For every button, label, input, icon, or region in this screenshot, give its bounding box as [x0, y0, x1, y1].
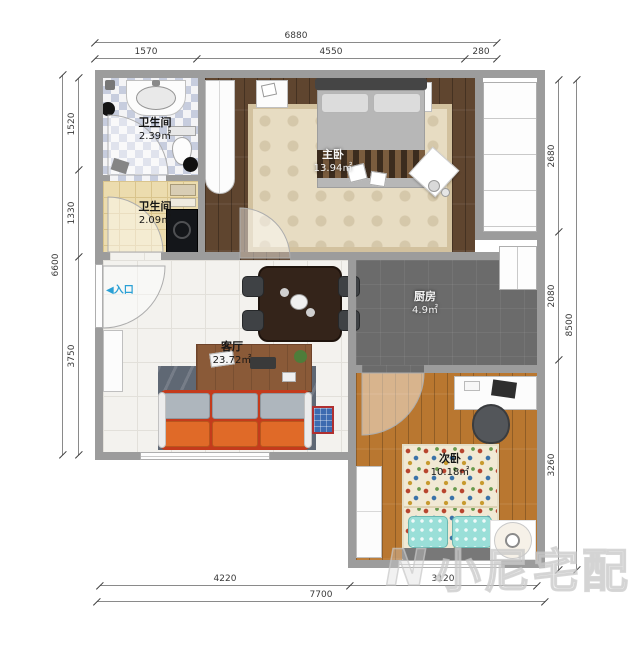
dim-label: 8500	[565, 314, 575, 337]
doormat	[312, 406, 334, 434]
dim-label: 1570	[135, 47, 158, 57]
master-bed-headboard	[315, 78, 427, 90]
shower-head-icon	[105, 80, 115, 90]
dim-label: 4550	[320, 47, 343, 57]
wall-segment	[95, 70, 545, 78]
room-name: 主卧	[322, 148, 344, 161]
dining-chair	[242, 276, 264, 297]
room-name: 次卧	[439, 452, 461, 465]
dim-label: 3260	[547, 454, 557, 477]
door-opening	[110, 252, 161, 260]
dinnerware	[290, 294, 308, 310]
second-bed-pillow	[408, 516, 448, 548]
room-label-living-room: 客厅 23.72㎡	[190, 340, 274, 367]
wall-segment	[537, 78, 545, 568]
dim-left-segments: 1520 1330 3750	[78, 78, 79, 455]
window	[398, 560, 502, 568]
entrance-arrow-icon: ◀	[106, 285, 114, 296]
decor-plate	[428, 180, 440, 192]
room-name: 卫生间	[139, 200, 172, 213]
wall-segment	[166, 175, 198, 181]
dim-label: 6600	[51, 254, 61, 277]
second-bed-fold-line	[404, 506, 497, 508]
second-bed-headboard	[402, 548, 499, 560]
towel-ring-icon	[101, 102, 115, 116]
shoe-cabinet	[103, 330, 123, 392]
entrance-label: 入口	[114, 285, 134, 296]
dim-label: 3750	[67, 345, 77, 368]
room-area: 23.72㎡	[190, 354, 274, 367]
dinnerware	[280, 288, 289, 297]
floor-plan: 卫生间 2.39㎡ 卫生间 2.09㎡ 主卧 13.94㎡ 厨房 4.9㎡ 客厅…	[0, 0, 640, 658]
dim-label: 1330	[67, 202, 77, 225]
desk-paper	[464, 381, 480, 391]
decor-plate	[441, 188, 450, 197]
second-bed-pillow	[452, 516, 492, 548]
kitchen-window-nook	[499, 246, 537, 290]
wall-segment	[198, 70, 205, 260]
wall-segment	[475, 232, 545, 240]
window	[140, 452, 270, 460]
dim-label: 2680	[547, 145, 557, 168]
dim-bottom-segments: 4220 3120	[100, 585, 537, 586]
bedroom2-wardrobe	[356, 466, 382, 558]
sofa-armrest	[304, 392, 312, 448]
dim-top-segments: 1570 4550 280	[95, 58, 497, 59]
master-wardrobe	[205, 80, 235, 194]
wall-segment	[475, 78, 483, 240]
dim-top-overall: 6880	[95, 42, 497, 43]
bathroom-sink	[136, 86, 176, 110]
wall-segment	[161, 252, 240, 260]
room-name: 厨房	[414, 290, 436, 303]
dim-bottom-overall: 7700	[97, 601, 545, 602]
wall-segment	[348, 260, 356, 368]
door-opening	[110, 175, 166, 181]
room-label-second-bedroom: 次卧 10.18㎡	[408, 452, 492, 479]
office-chair	[472, 404, 510, 444]
dim-label: 2080	[547, 285, 557, 308]
door-opening	[362, 365, 424, 373]
laptop	[491, 379, 517, 398]
sofa-seat-cushions	[163, 421, 307, 447]
room-name: 客厅	[221, 340, 243, 353]
wall-segment	[348, 365, 362, 373]
dim-label: 3120	[432, 574, 455, 584]
room-area: 2.39㎡	[113, 130, 197, 143]
wall-segment	[103, 175, 110, 181]
room-label-bathroom-top: 卫生间 2.39㎡	[113, 116, 197, 143]
room-area: 2.09㎡	[113, 214, 197, 227]
room-label-kitchen: 厨房 4.9㎡	[383, 290, 467, 317]
wall-segment	[348, 373, 356, 560]
room-label-bathroom-mid: 卫生间 2.09㎡	[113, 200, 197, 227]
dim-label: 280	[472, 47, 489, 57]
dim-left-overall: 6600	[62, 75, 63, 455]
wall-segment	[103, 252, 110, 260]
faucet-icon	[152, 80, 160, 86]
sofa-back-cushions	[163, 393, 307, 419]
sofa-armrest	[158, 392, 166, 448]
master-bed-pillow	[321, 93, 369, 113]
dim-right-segments: 2680 2080 3260	[558, 80, 559, 570]
waste-bin	[183, 157, 198, 172]
plant-icon	[294, 350, 307, 363]
room-area: 10.18㎡	[408, 466, 492, 479]
dining-chair	[242, 310, 264, 331]
entry-door-opening	[95, 264, 103, 328]
dim-right-overall: 8500	[576, 80, 577, 570]
shelf-item	[170, 184, 196, 196]
room-area: 4.9㎡	[383, 304, 467, 317]
dim-label: 4220	[214, 574, 237, 584]
bay-window	[483, 82, 537, 232]
door-opening	[240, 252, 290, 260]
dinnerware	[306, 308, 315, 317]
dim-label: 1520	[67, 113, 77, 136]
room-name: 卫生间	[139, 116, 172, 129]
room-label-master-bedroom: 主卧 13.94㎡	[291, 148, 375, 175]
dim-label: 7700	[310, 590, 333, 600]
wall-segment	[424, 365, 537, 373]
room-area: 13.94㎡	[291, 162, 375, 175]
decor-item	[282, 372, 296, 382]
sofa	[160, 390, 310, 450]
master-bed-pillow	[373, 93, 421, 113]
fan-hub-icon	[505, 533, 520, 548]
entrance-marker: ◀入口	[106, 281, 134, 296]
dim-label: 6880	[285, 31, 308, 41]
